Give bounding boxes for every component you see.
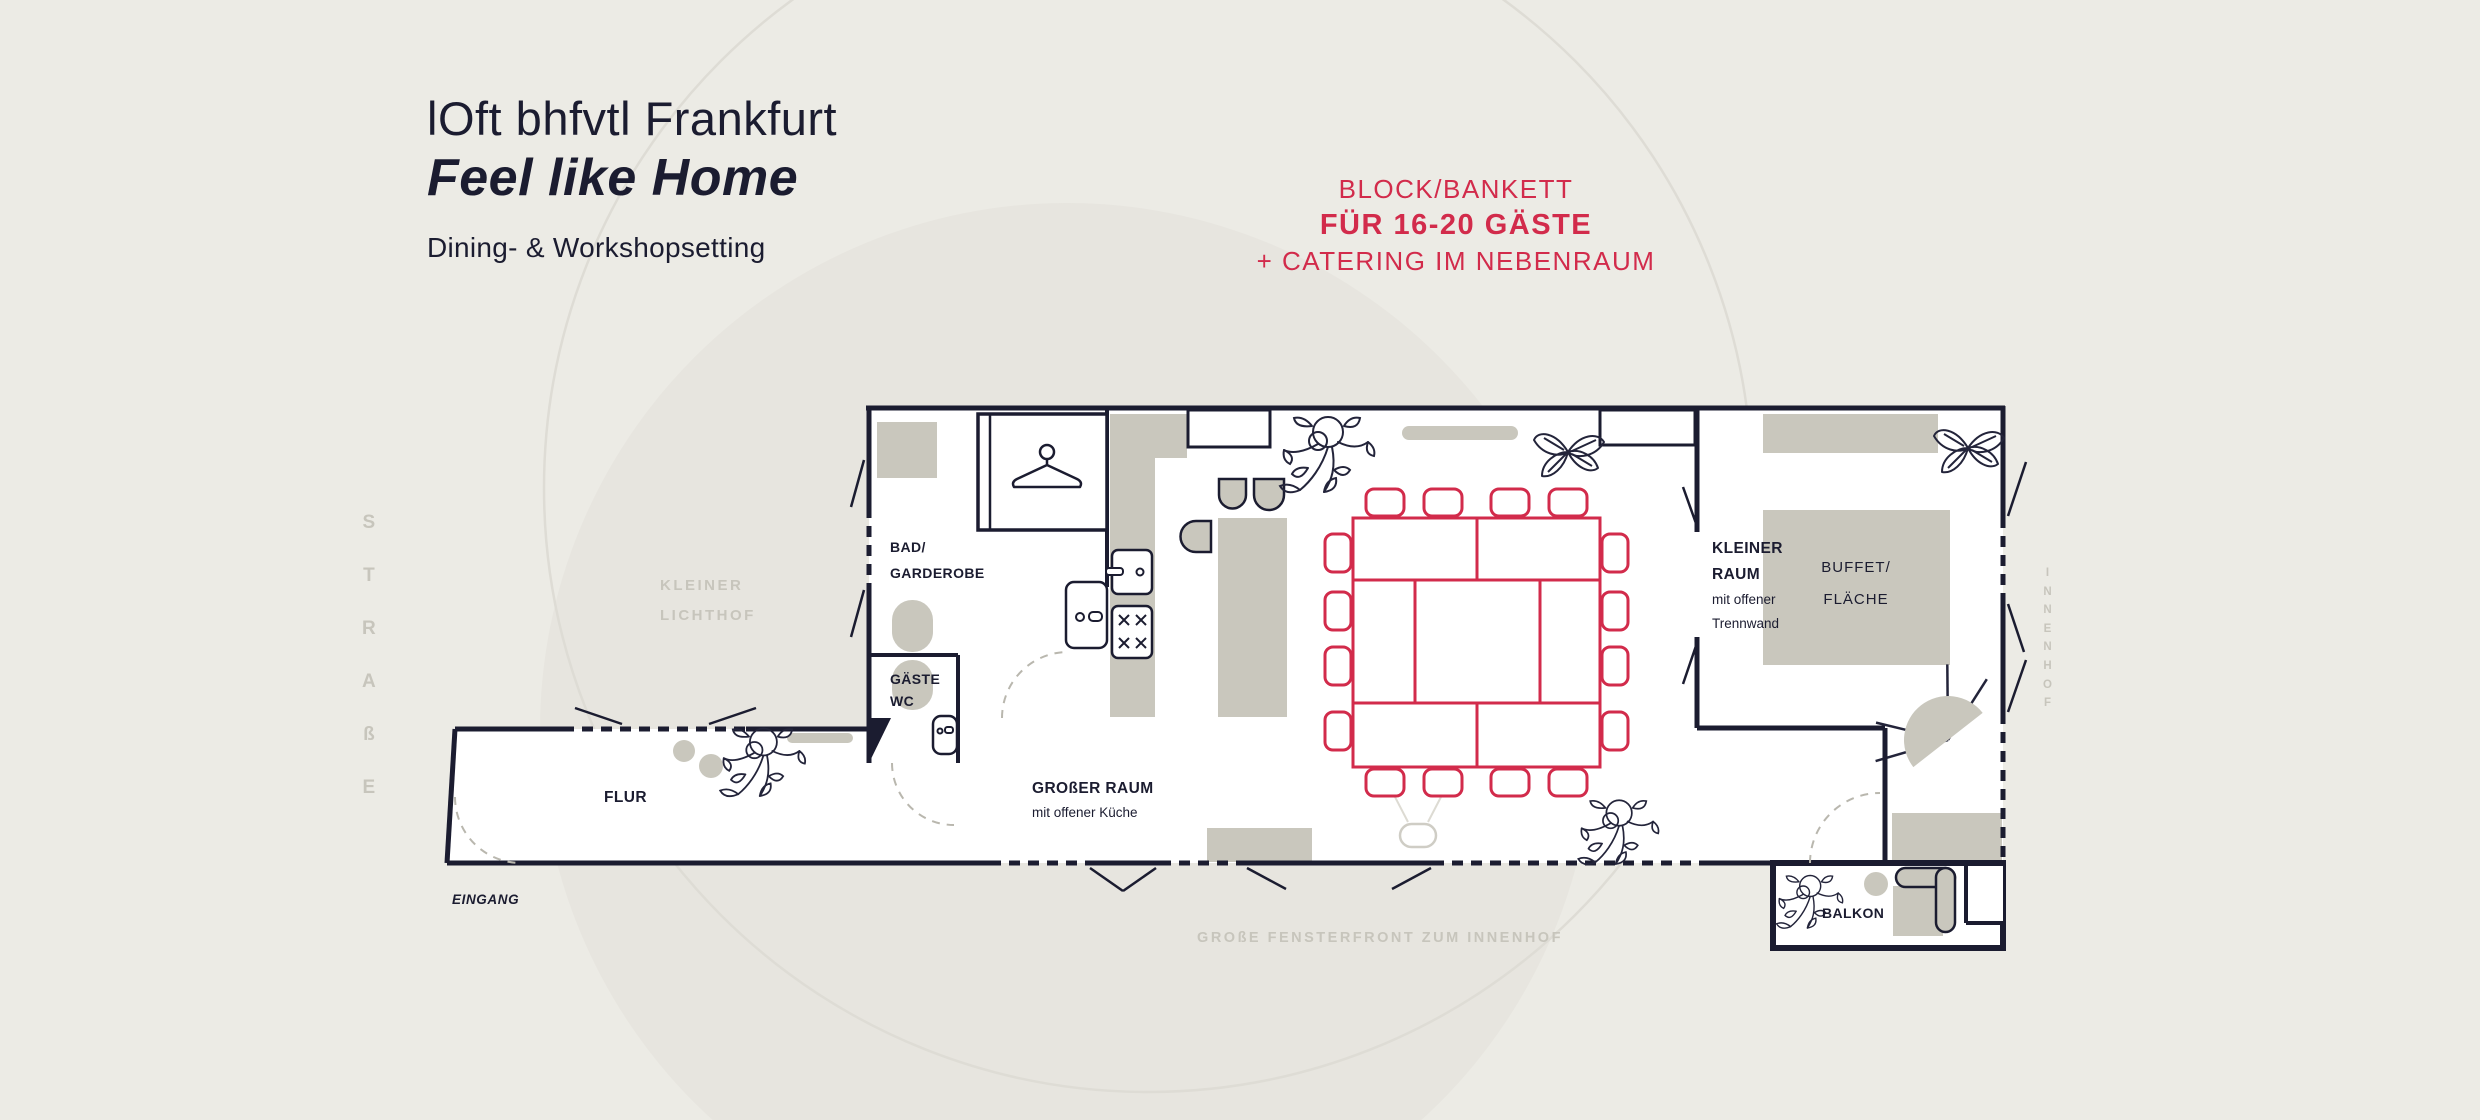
buffet-area <box>1763 510 1950 665</box>
label-flur: FLUR <box>604 789 647 806</box>
event-capacity: FÜR 16-20 GÄSTE <box>1257 207 1656 244</box>
event-type: BLOCK/BANKETT <box>1257 172 1656 207</box>
radiator <box>787 733 853 743</box>
label-grosser-raum: GROßER RAUM <box>1032 780 1154 797</box>
svg-text:WC: WC <box>890 693 914 709</box>
wc-sink-icon <box>933 716 957 754</box>
faucet-icon <box>1106 568 1123 575</box>
svg-text:RAUM: RAUM <box>1712 566 1760 583</box>
bath-sink <box>892 600 933 652</box>
label-kleiner-raum: KLEINER <box>1712 540 1783 557</box>
label-eingang: EINGANG <box>452 892 519 907</box>
balcony-table <box>1864 872 1888 896</box>
label-balkon: BALKON <box>1822 905 1884 921</box>
wardrobe <box>978 414 1107 530</box>
shower-tray <box>877 422 937 478</box>
kitchen-counter-top <box>1110 414 1187 458</box>
label-lichthof: KLEINER <box>660 577 743 594</box>
header: lOft bhfvtl Frankfurt Feel like Home Din… <box>427 92 837 264</box>
sofa-icon <box>1936 868 1955 932</box>
tables <box>1353 518 1600 767</box>
label-strasse: S T R A ß E <box>362 496 376 814</box>
page-title: lOft bhfvtl Frankfurt <box>427 92 837 146</box>
radiator <box>1402 426 1518 440</box>
stove-icon <box>1112 606 1152 658</box>
label-fensterfront: GROßE FENSTERFRONT ZUM INNENHOF <box>1197 930 1563 946</box>
svg-text:mit offener Küche: mit offener Küche <box>1032 805 1138 820</box>
island-stool <box>1180 521 1211 552</box>
bench <box>1892 813 2002 862</box>
stool <box>699 754 723 778</box>
svg-text:FLÄCHE: FLÄCHE <box>1823 591 1888 608</box>
bench <box>1207 828 1312 862</box>
svg-text:Trennwand: Trennwand <box>1712 616 1779 631</box>
page-subtitle: Feel like Home <box>427 148 837 208</box>
label-wc: GÄSTE <box>890 671 940 687</box>
label-buffet: BUFFET/ <box>1821 559 1891 576</box>
kitchen-island <box>1218 518 1287 717</box>
page-tagline: Dining- & Workshopsetting <box>427 232 837 264</box>
banquet-seating <box>1325 489 1628 796</box>
wall-recess <box>1600 410 1695 445</box>
svg-text:GARDEROBE: GARDEROBE <box>890 565 985 581</box>
label-innenhof: I N N E N H O F <box>2043 564 2052 713</box>
wall-recess <box>1188 410 1270 447</box>
event-catering: + CATERING IM NEBENRAUM <box>1257 244 1656 279</box>
island-stool <box>1254 479 1284 510</box>
svg-text:mit offener: mit offener <box>1712 592 1776 607</box>
sideboard <box>1763 414 1938 453</box>
stool <box>673 740 695 762</box>
island-stool <box>1219 479 1246 509</box>
event-info: BLOCK/BANKETT FÜR 16-20 GÄSTE + CATERING… <box>1257 172 1656 279</box>
svg-text:LICHTHOF: LICHTHOF <box>660 607 756 624</box>
balcony-recess <box>1966 866 2003 923</box>
floor-plan-page: BAD/ GARDEROBE GÄSTE WC FLUR EINGANG GRO… <box>0 0 2480 1120</box>
label-bad: BAD/ <box>890 539 926 555</box>
